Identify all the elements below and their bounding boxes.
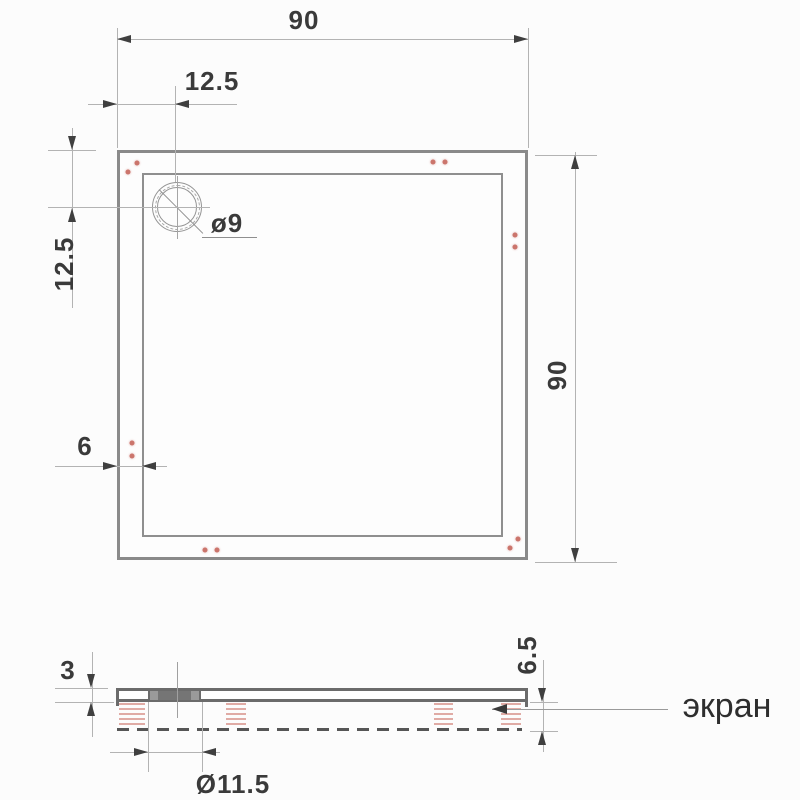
dim-rim-thickness-label: 6 xyxy=(77,433,92,459)
arrowhead xyxy=(87,674,95,688)
watermark-dot xyxy=(443,160,448,165)
dim-total-height-label: 6.5 xyxy=(514,635,540,674)
extension-line xyxy=(117,28,118,148)
arrowhead xyxy=(87,702,95,716)
dim-boss-diameter-label: Ø11.5 xyxy=(196,771,270,797)
dim-drain-offset-x-label: 12.5 xyxy=(185,68,240,94)
arrowhead xyxy=(103,100,117,108)
arrowhead xyxy=(571,155,579,169)
arrowhead xyxy=(68,136,76,150)
leader-arrowhead xyxy=(492,704,507,714)
arrowhead xyxy=(571,548,579,562)
watermark-dot xyxy=(215,548,220,553)
extension-line xyxy=(528,28,529,148)
arrowhead xyxy=(142,462,156,470)
dim-drain-offset-y-label: 12.5 xyxy=(51,237,77,292)
extension-line xyxy=(55,688,108,689)
arrowhead xyxy=(514,35,528,43)
screen-foot-hatch xyxy=(119,703,145,727)
extension-line xyxy=(535,155,597,156)
watermark-dot xyxy=(516,537,521,542)
arrowhead xyxy=(134,748,148,756)
dim-right-height-label: 90 xyxy=(544,360,570,391)
screen-foot-hatch xyxy=(226,703,246,727)
screen-foot-hatch xyxy=(434,703,453,727)
arrowhead xyxy=(103,462,117,470)
watermark-dot xyxy=(130,441,135,446)
arrowhead xyxy=(68,208,76,222)
arrowhead xyxy=(538,688,546,702)
arrowhead xyxy=(175,100,189,108)
watermark-dot xyxy=(135,161,140,166)
dim-tray-thickness-label: 3 xyxy=(60,657,75,683)
extension-line xyxy=(202,702,203,772)
leader-line xyxy=(492,709,668,710)
drain-centerline-section xyxy=(177,662,178,718)
arrowhead xyxy=(117,35,131,43)
arrowhead xyxy=(202,748,216,756)
dimension-line xyxy=(92,652,93,737)
arrowhead xyxy=(538,731,546,745)
tray-profile-right-lip xyxy=(525,700,528,707)
watermark-dot xyxy=(203,548,208,553)
dimension-line xyxy=(117,39,528,40)
drawing-canvas: ø9 90 12.5 12.5 xyxy=(0,0,800,800)
dim-top-width-label: 90 xyxy=(289,7,320,33)
extension-line xyxy=(55,702,114,703)
watermark-dot xyxy=(431,160,436,165)
screen-bottom-dashed-line xyxy=(117,728,522,731)
extension-line xyxy=(148,702,149,772)
watermark-dot xyxy=(126,170,131,175)
dimension-line xyxy=(575,152,576,562)
drain-diameter-label: ø9 xyxy=(211,210,243,236)
watermark-dot xyxy=(508,546,513,551)
screen-label: экран xyxy=(683,689,772,723)
watermark-dot xyxy=(513,233,518,238)
watermark-dot xyxy=(130,454,135,459)
drain-boss-core xyxy=(158,691,191,700)
watermark-dot xyxy=(513,245,518,250)
